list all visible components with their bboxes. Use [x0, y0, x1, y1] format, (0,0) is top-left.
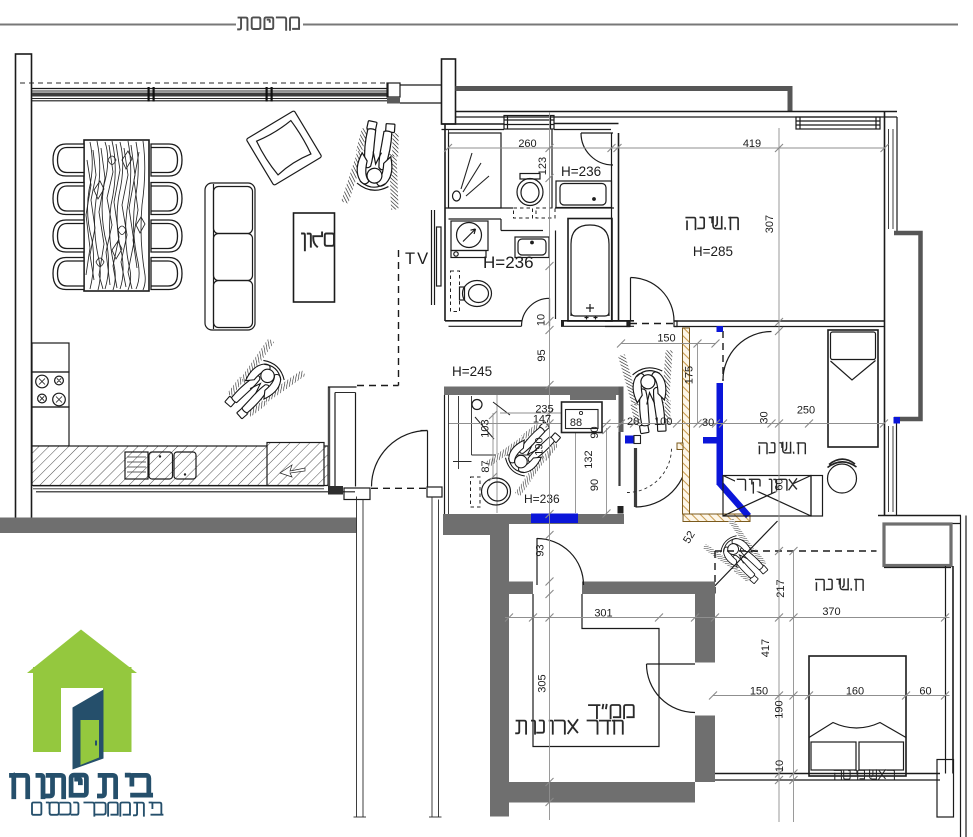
- svg-text:H=236: H=236: [524, 492, 560, 506]
- svg-text:150: 150: [657, 333, 675, 345]
- svg-text:260: 260: [518, 138, 536, 150]
- svg-text:30: 30: [702, 417, 714, 429]
- svg-text:175: 175: [684, 366, 696, 384]
- svg-text:305: 305: [537, 674, 549, 692]
- svg-text:123: 123: [537, 157, 549, 175]
- svg-text:370: 370: [822, 606, 840, 618]
- svg-text:417: 417: [760, 639, 772, 657]
- svg-text:419: 419: [743, 138, 761, 150]
- svg-text:150: 150: [750, 686, 768, 698]
- svg-text:20: 20: [627, 416, 639, 428]
- svg-text:H=245: H=245: [452, 364, 492, 379]
- svg-text:60: 60: [774, 478, 786, 490]
- svg-text:301: 301: [594, 608, 612, 620]
- svg-text:H=236: H=236: [483, 253, 534, 272]
- svg-text:95: 95: [536, 349, 548, 361]
- svg-text:60: 60: [919, 686, 931, 698]
- svg-text:307: 307: [764, 215, 776, 233]
- svg-text:88: 88: [570, 417, 582, 429]
- svg-text:H=285: H=285: [693, 244, 733, 259]
- svg-text:H=236: H=236: [561, 164, 601, 179]
- svg-text:100: 100: [654, 416, 672, 428]
- svg-text:87: 87: [480, 460, 492, 472]
- svg-text:190: 190: [534, 437, 546, 455]
- svg-text:90: 90: [589, 479, 601, 491]
- svg-text:30: 30: [759, 411, 771, 423]
- svg-text:217: 217: [775, 579, 787, 597]
- svg-text:10: 10: [774, 760, 786, 772]
- svg-text:TV: TV: [405, 250, 430, 268]
- svg-text:132: 132: [583, 450, 595, 468]
- svg-text:93: 93: [535, 544, 547, 556]
- svg-text:160: 160: [846, 686, 864, 698]
- svg-text:250: 250: [797, 405, 815, 417]
- svg-text:10: 10: [536, 314, 548, 326]
- svg-text:190: 190: [774, 700, 786, 718]
- svg-text:90: 90: [589, 426, 601, 438]
- svg-text:103: 103: [480, 419, 492, 437]
- svg-text:147: 147: [533, 414, 551, 426]
